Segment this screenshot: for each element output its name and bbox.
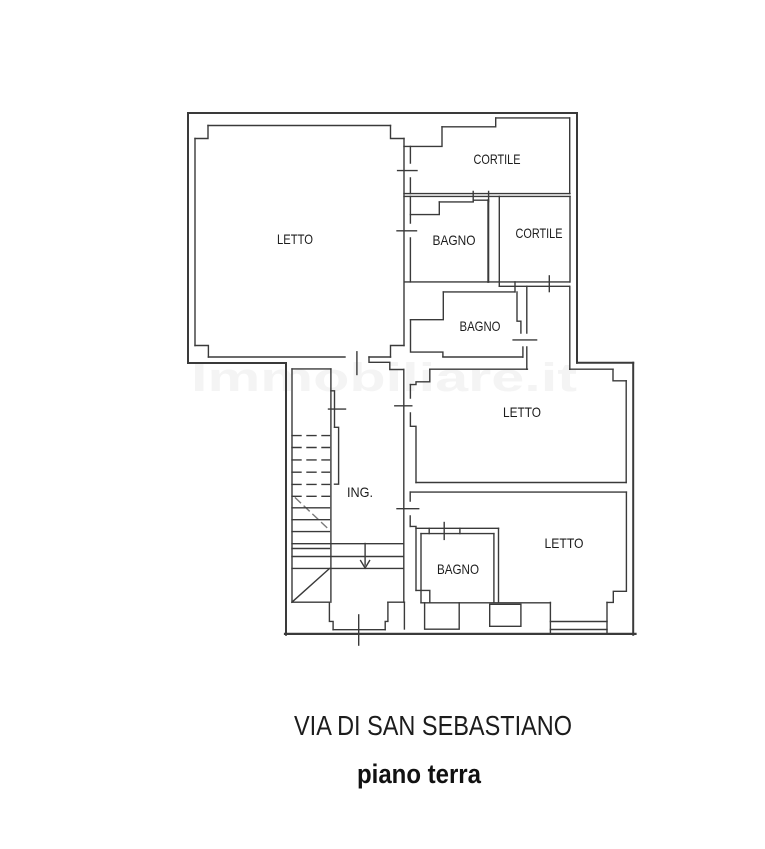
- svg-text:ING.: ING.: [347, 484, 373, 500]
- svg-text:BAGNO: BAGNO: [460, 318, 501, 334]
- svg-text:LETTO: LETTO: [545, 535, 584, 551]
- svg-text:VIA DI SAN SEBASTIANO: VIA DI SAN SEBASTIANO: [294, 710, 572, 741]
- svg-text:piano terra: piano terra: [357, 759, 482, 789]
- svg-text:CORTILE: CORTILE: [516, 225, 563, 241]
- svg-text:CORTILE: CORTILE: [474, 151, 521, 167]
- svg-text:BAGNO: BAGNO: [437, 561, 479, 577]
- svg-text:LETTO: LETTO: [503, 404, 541, 420]
- svg-text:BAGNO: BAGNO: [433, 232, 476, 248]
- svg-text:LETTO: LETTO: [277, 231, 313, 247]
